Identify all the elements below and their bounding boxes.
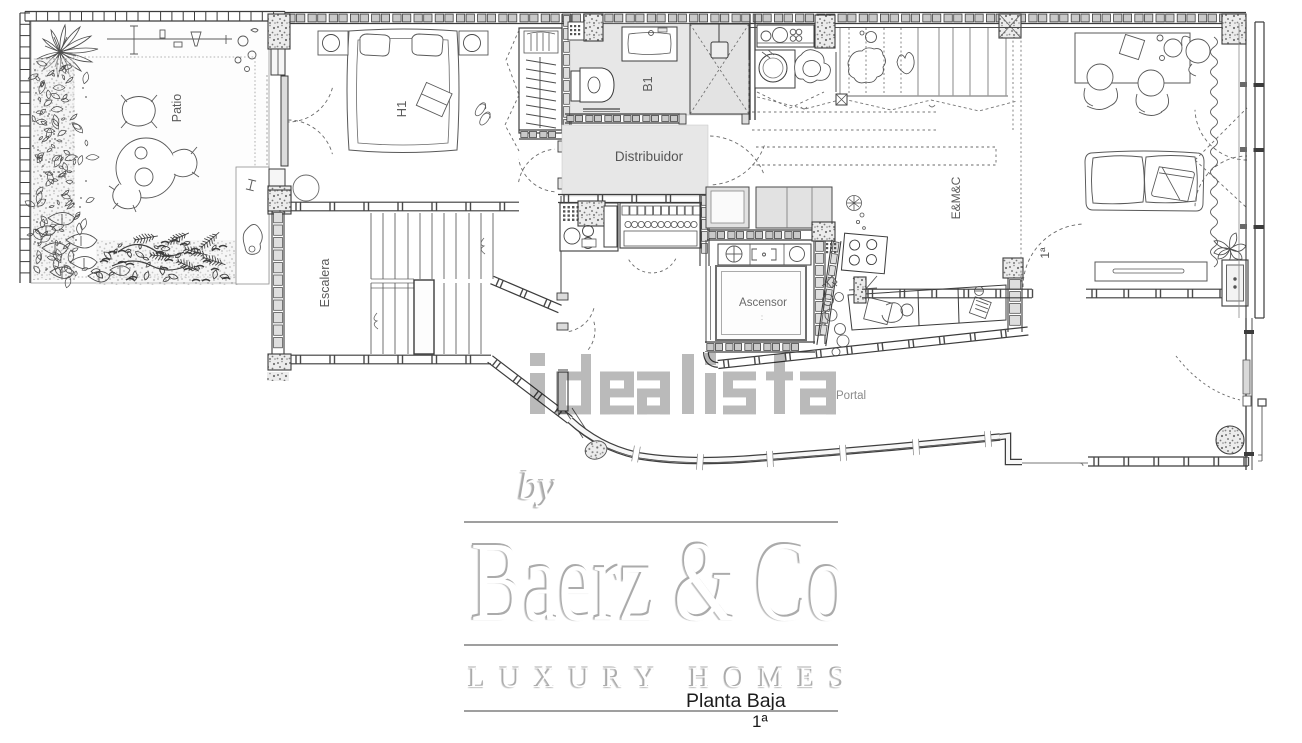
- svg-text:1ª: 1ª: [1038, 247, 1052, 259]
- svg-text:H1: H1: [394, 101, 409, 118]
- svg-text:B1: B1: [641, 76, 655, 91]
- svg-text:E&M&C: E&M&C: [949, 176, 963, 219]
- svg-text:Escalera: Escalera: [318, 259, 332, 308]
- svg-text:Distribuidor: Distribuidor: [615, 149, 684, 164]
- svg-text:Ascensor: Ascensor: [739, 297, 787, 309]
- svg-text:Patio: Patio: [170, 94, 184, 123]
- svg-text::: :: [761, 313, 763, 322]
- svg-text:Portal: Portal: [836, 390, 866, 402]
